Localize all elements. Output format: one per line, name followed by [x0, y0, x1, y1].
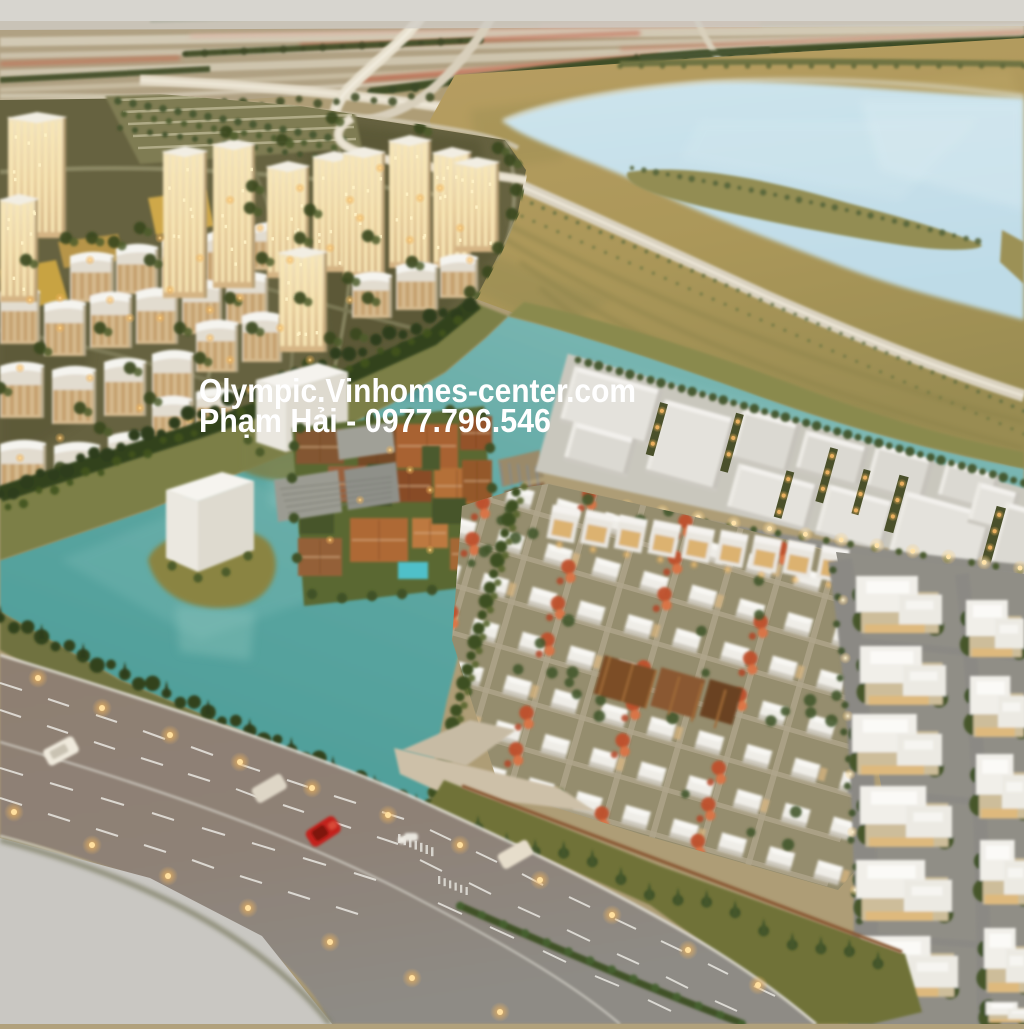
svg-text:Phạm Hải - 0977.796.546: Phạm Hải - 0977.796.546 — [199, 402, 551, 439]
